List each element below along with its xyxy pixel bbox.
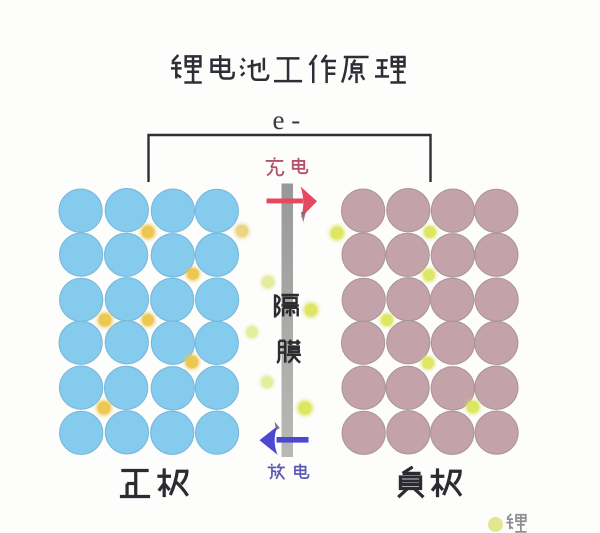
svg-text:e -: e - <box>273 105 301 135</box>
